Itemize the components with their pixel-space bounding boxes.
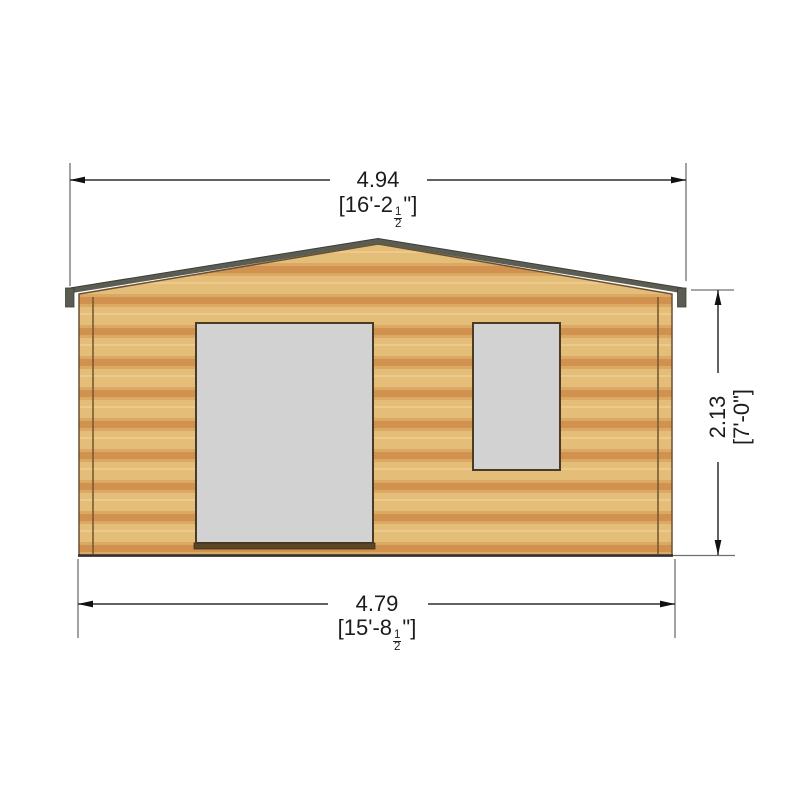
door	[196, 323, 373, 543]
height-dimension-label: 2.13 [7'-0"]	[706, 347, 754, 487]
height-dim-arrow-up	[715, 291, 722, 306]
top-imperial-fraction: 12	[393, 207, 403, 229]
top-imperial-suffix: "]	[403, 192, 417, 217]
bottom-imperial-prefix: [15'-8	[338, 615, 392, 640]
bottom-dimension-metric-label: 4.79	[297, 592, 457, 616]
height-dim-arrow-down	[715, 540, 722, 555]
elevation-drawing	[0, 0, 800, 800]
height-dimension-metric-label: 2.13	[706, 347, 730, 487]
bottom-dim-arrow-right	[660, 601, 675, 608]
bottom-imperial-fraction: 12	[392, 630, 402, 652]
top-dimension-metric-label: 4.94	[298, 168, 458, 192]
bottom-dimension-imperial-label: [15'-812"]	[297, 616, 457, 652]
cabin-wall	[79, 244, 672, 556]
top-dim-arrow-right	[671, 177, 686, 184]
bottom-imperial-suffix: "]	[402, 615, 416, 640]
right-fascia-tip	[678, 288, 687, 307]
diagram-canvas: 4.94 [16'-212"] 4.79 [15'-812"] 2.13 [7'…	[0, 0, 800, 800]
top-dimension-imperial-label: [16'-212"]	[298, 193, 458, 229]
window	[473, 323, 560, 470]
bottom-dim-arrow-left	[78, 601, 93, 608]
top-imperial-prefix: [16'-2	[339, 192, 393, 217]
top-dim-arrow-left	[70, 177, 85, 184]
left-fascia-tip	[66, 288, 75, 307]
height-dimension-imperial-label: [7'-0"]	[730, 347, 754, 487]
door-sill	[194, 543, 375, 549]
